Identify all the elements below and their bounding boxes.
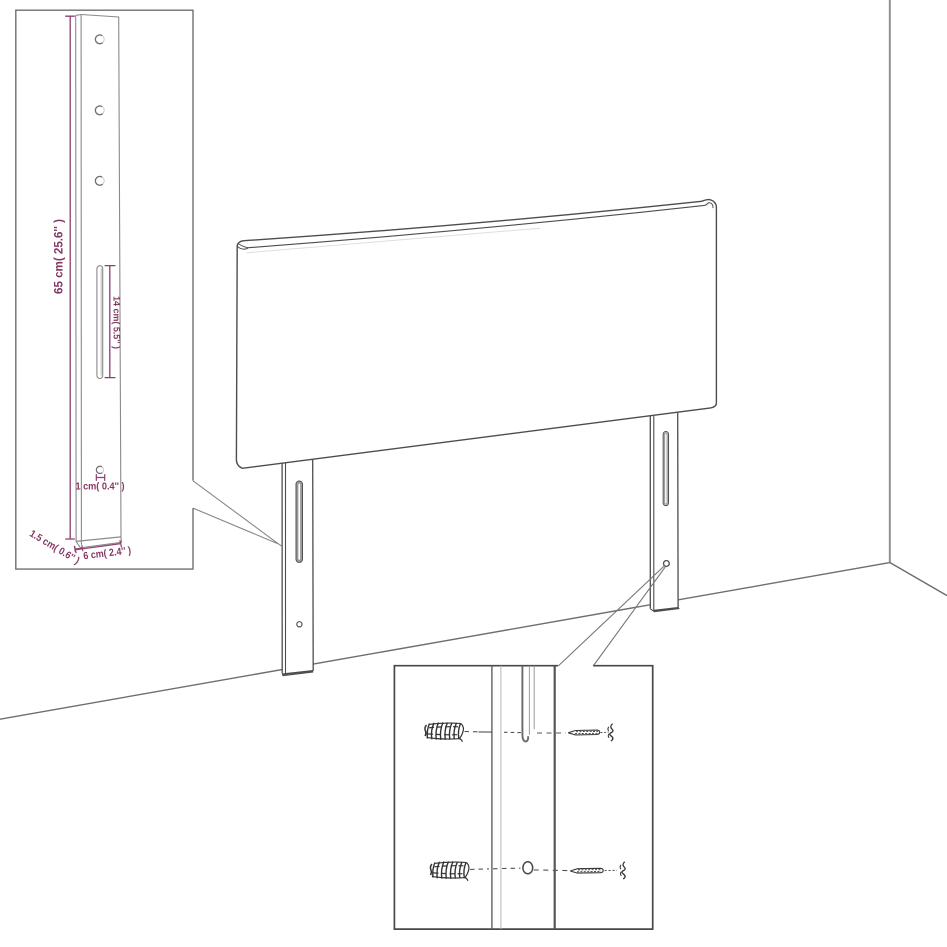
svg-text:1 cm( 0.4'' ): 1 cm( 0.4'' ) xyxy=(75,481,124,493)
svg-text:65 cm( 25.6'' ): 65 cm( 25.6'' ) xyxy=(51,219,65,294)
svg-text:14 cm( 5.5'' ): 14 cm( 5.5'' ) xyxy=(112,296,122,349)
